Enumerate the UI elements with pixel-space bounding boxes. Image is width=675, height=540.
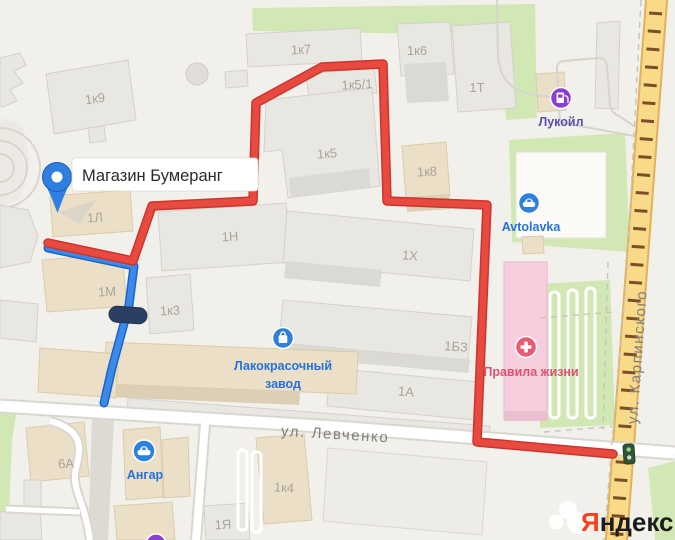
logo-rest: ндекс <box>600 507 674 537</box>
building <box>88 126 106 143</box>
building-label: 1к6 <box>407 43 427 58</box>
building-label: 1к5/1 <box>341 76 373 93</box>
building-label: 1Н <box>221 229 238 245</box>
building-label: 1к7 <box>291 41 312 57</box>
building-label: 1Я <box>214 517 231 533</box>
car-window-glyph <box>527 200 531 202</box>
map-canvas[interactable]: 1к9 1к7 1к6 1к5/1 1Т 1к5 1к8 1Л 1Н 1Х 1М… <box>0 0 675 540</box>
building <box>225 70 248 88</box>
building-label: 1к5 <box>316 145 337 161</box>
building-label: 1Л <box>87 209 104 225</box>
building-label: 6А <box>58 455 75 471</box>
pin-label[interactable]: Магазин Бумеранг <box>82 167 223 185</box>
building-label: 1А <box>398 383 415 399</box>
building-label: 1БЗ <box>444 338 469 355</box>
building-label: 1к8 <box>417 163 438 179</box>
poi-label-lako-line1[interactable]: Лакокрасочный <box>234 359 332 373</box>
poi-label-lukoil[interactable]: Лукойл <box>538 115 583 129</box>
logo-cloud <box>549 515 564 530</box>
car-body-glyph <box>523 202 535 207</box>
building-1t <box>452 22 516 112</box>
poi-label-angar[interactable]: Ангар <box>127 468 164 482</box>
building <box>404 62 449 103</box>
building <box>0 300 38 342</box>
fuel-pump-window <box>558 95 563 98</box>
building-label: 1Т <box>469 80 484 95</box>
poi-label-lako-line2[interactable]: завод <box>265 377 301 391</box>
tank-structure <box>186 63 208 85</box>
poi-label-pravila[interactable]: Правила жизни <box>483 365 578 379</box>
railway-crossing-light-icon <box>623 444 635 465</box>
building <box>162 437 190 498</box>
bag-body-glyph <box>279 335 288 343</box>
building-angar <box>123 427 163 500</box>
car-window-glyph <box>142 447 146 450</box>
cross-glyph-h <box>521 345 532 349</box>
road <box>6 509 80 512</box>
fuel-pump-glyph <box>557 93 565 104</box>
building <box>323 448 487 535</box>
building <box>522 236 544 254</box>
logo-ya: Я <box>581 507 600 537</box>
building-label: 1Х <box>401 247 418 263</box>
building-label: 1к4 <box>273 479 294 495</box>
building-label: 1к3 <box>160 302 181 318</box>
building <box>504 411 547 421</box>
car-body-glyph <box>138 450 151 455</box>
poi-label-avtolavka[interactable]: Avtolavka <box>502 220 562 234</box>
building-label: 1М <box>98 284 117 300</box>
pin-core <box>52 172 63 183</box>
building-label: 1к9 <box>84 90 106 108</box>
yandex-logo-text[interactable]: Яндекс <box>581 507 674 537</box>
barrier-icon <box>108 306 147 325</box>
building <box>114 502 175 540</box>
